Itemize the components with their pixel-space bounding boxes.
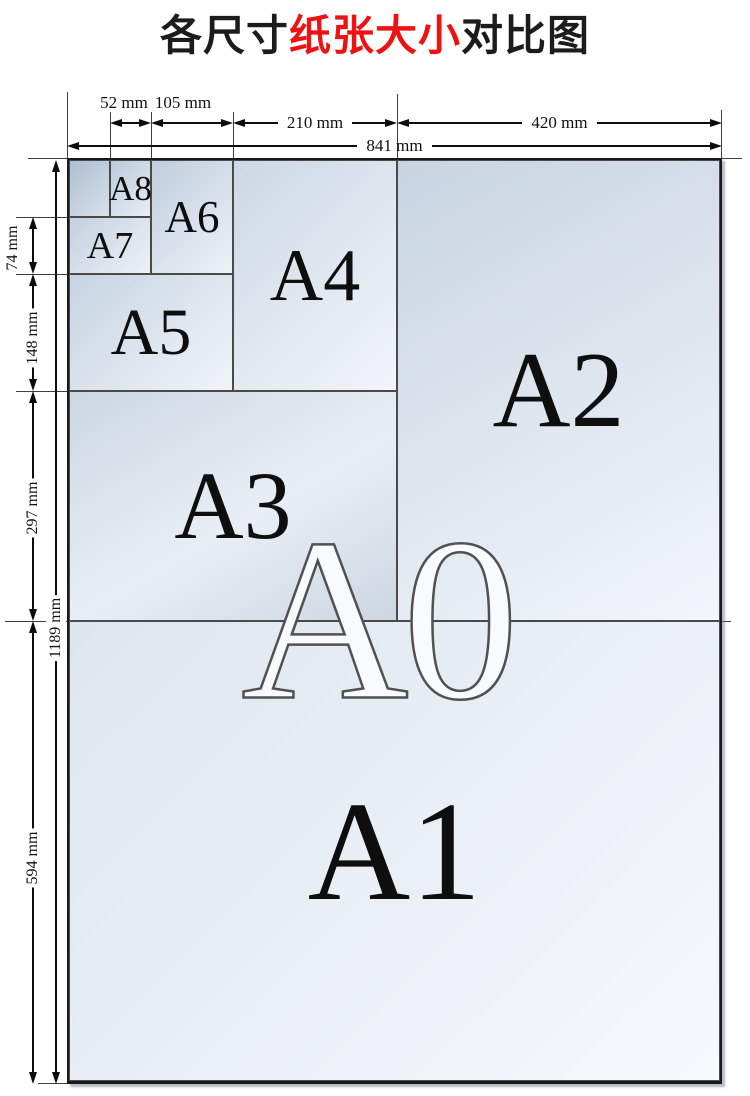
tick-y-top-right [722, 158, 742, 159]
arrowhead-right-icon [710, 119, 722, 127]
arrowhead-up-icon [52, 160, 60, 172]
arrowhead-left-icon [151, 119, 163, 127]
dim-arrow-841mm: 841 mm [67, 139, 722, 153]
arrowhead-down-icon [29, 379, 37, 391]
arrowhead-left-icon [67, 142, 79, 150]
dim-arrow-105mm [151, 116, 233, 130]
paper-a2-label: A2 [493, 337, 625, 445]
dim-arrow-74mm [26, 217, 40, 274]
dim-label-105mm: 105 mm [155, 93, 211, 113]
dim-label-594mm: 594 mm [23, 829, 43, 888]
paper-a7: A7 [69, 217, 151, 274]
arrowhead-down-icon [29, 1072, 37, 1084]
arrowhead-right-icon [385, 119, 397, 127]
paper-a8-label: A8 [109, 171, 152, 206]
paper-a7-label: A7 [87, 227, 133, 265]
dim-label-148mm: 148 mm [23, 309, 43, 368]
arrowhead-up-icon [29, 391, 37, 403]
dim-label-52mm: 52 mm [100, 93, 148, 113]
title-black-left: 各尺寸 [160, 12, 289, 59]
paper-remainder [69, 160, 110, 217]
arrowhead-right-icon [139, 119, 151, 127]
paper-a6: A6 [151, 160, 233, 274]
dim-label-74mm: 74 mm [3, 223, 23, 274]
dim-label-210mm: 210 mm [278, 116, 352, 130]
paper-size-comparison-diagram: 各尺寸纸张大小对比图 52 mm 105 mm 210 mm 420 mm 84… [0, 0, 750, 1096]
dim-label-297mm: 297 mm [23, 479, 43, 538]
arrowhead-right-icon [221, 119, 233, 127]
title-red-highlight: 纸张大小 [289, 12, 461, 59]
paper-a8: A8 [110, 160, 151, 217]
arrowhead-right-icon [710, 142, 722, 150]
paper-a5: A5 [69, 274, 233, 391]
tick-y-middle-right [722, 621, 731, 622]
paper-a0-outline-label: A0 [117, 488, 637, 748]
paper-a5-label: A5 [111, 300, 192, 366]
arrowhead-up-icon [29, 217, 37, 229]
arrowhead-down-icon [52, 1072, 60, 1084]
paper-a1-label: A1 [308, 780, 482, 922]
arrowhead-up-icon [29, 274, 37, 286]
page-title: 各尺寸纸张大小对比图 [0, 2, 750, 63]
paper-a0-label: A0 [241, 492, 513, 749]
arrowhead-left-icon [110, 119, 122, 127]
tick-y-top [28, 158, 67, 159]
dim-label-841mm: 841 mm [357, 139, 431, 153]
dim-label-420mm: 420 mm [522, 116, 596, 130]
dim-arrow-52mm [110, 116, 151, 130]
arrowhead-left-icon [233, 119, 245, 127]
paper-a6-label: A6 [165, 195, 220, 240]
arrowhead-down-icon [29, 609, 37, 621]
title-black-right: 对比图 [461, 12, 590, 59]
arrowhead-down-icon [29, 262, 37, 274]
dim-label-1189mm: 1189 mm [46, 595, 66, 661]
arrowhead-left-icon [397, 119, 409, 127]
dim-arrow-210mm: 210 mm [233, 116, 397, 130]
paper-a4: A4 [233, 160, 397, 391]
dim-arrow-420mm: 420 mm [397, 116, 722, 130]
arrowhead-up-icon [29, 621, 37, 633]
paper-a4-label: A4 [270, 239, 360, 313]
